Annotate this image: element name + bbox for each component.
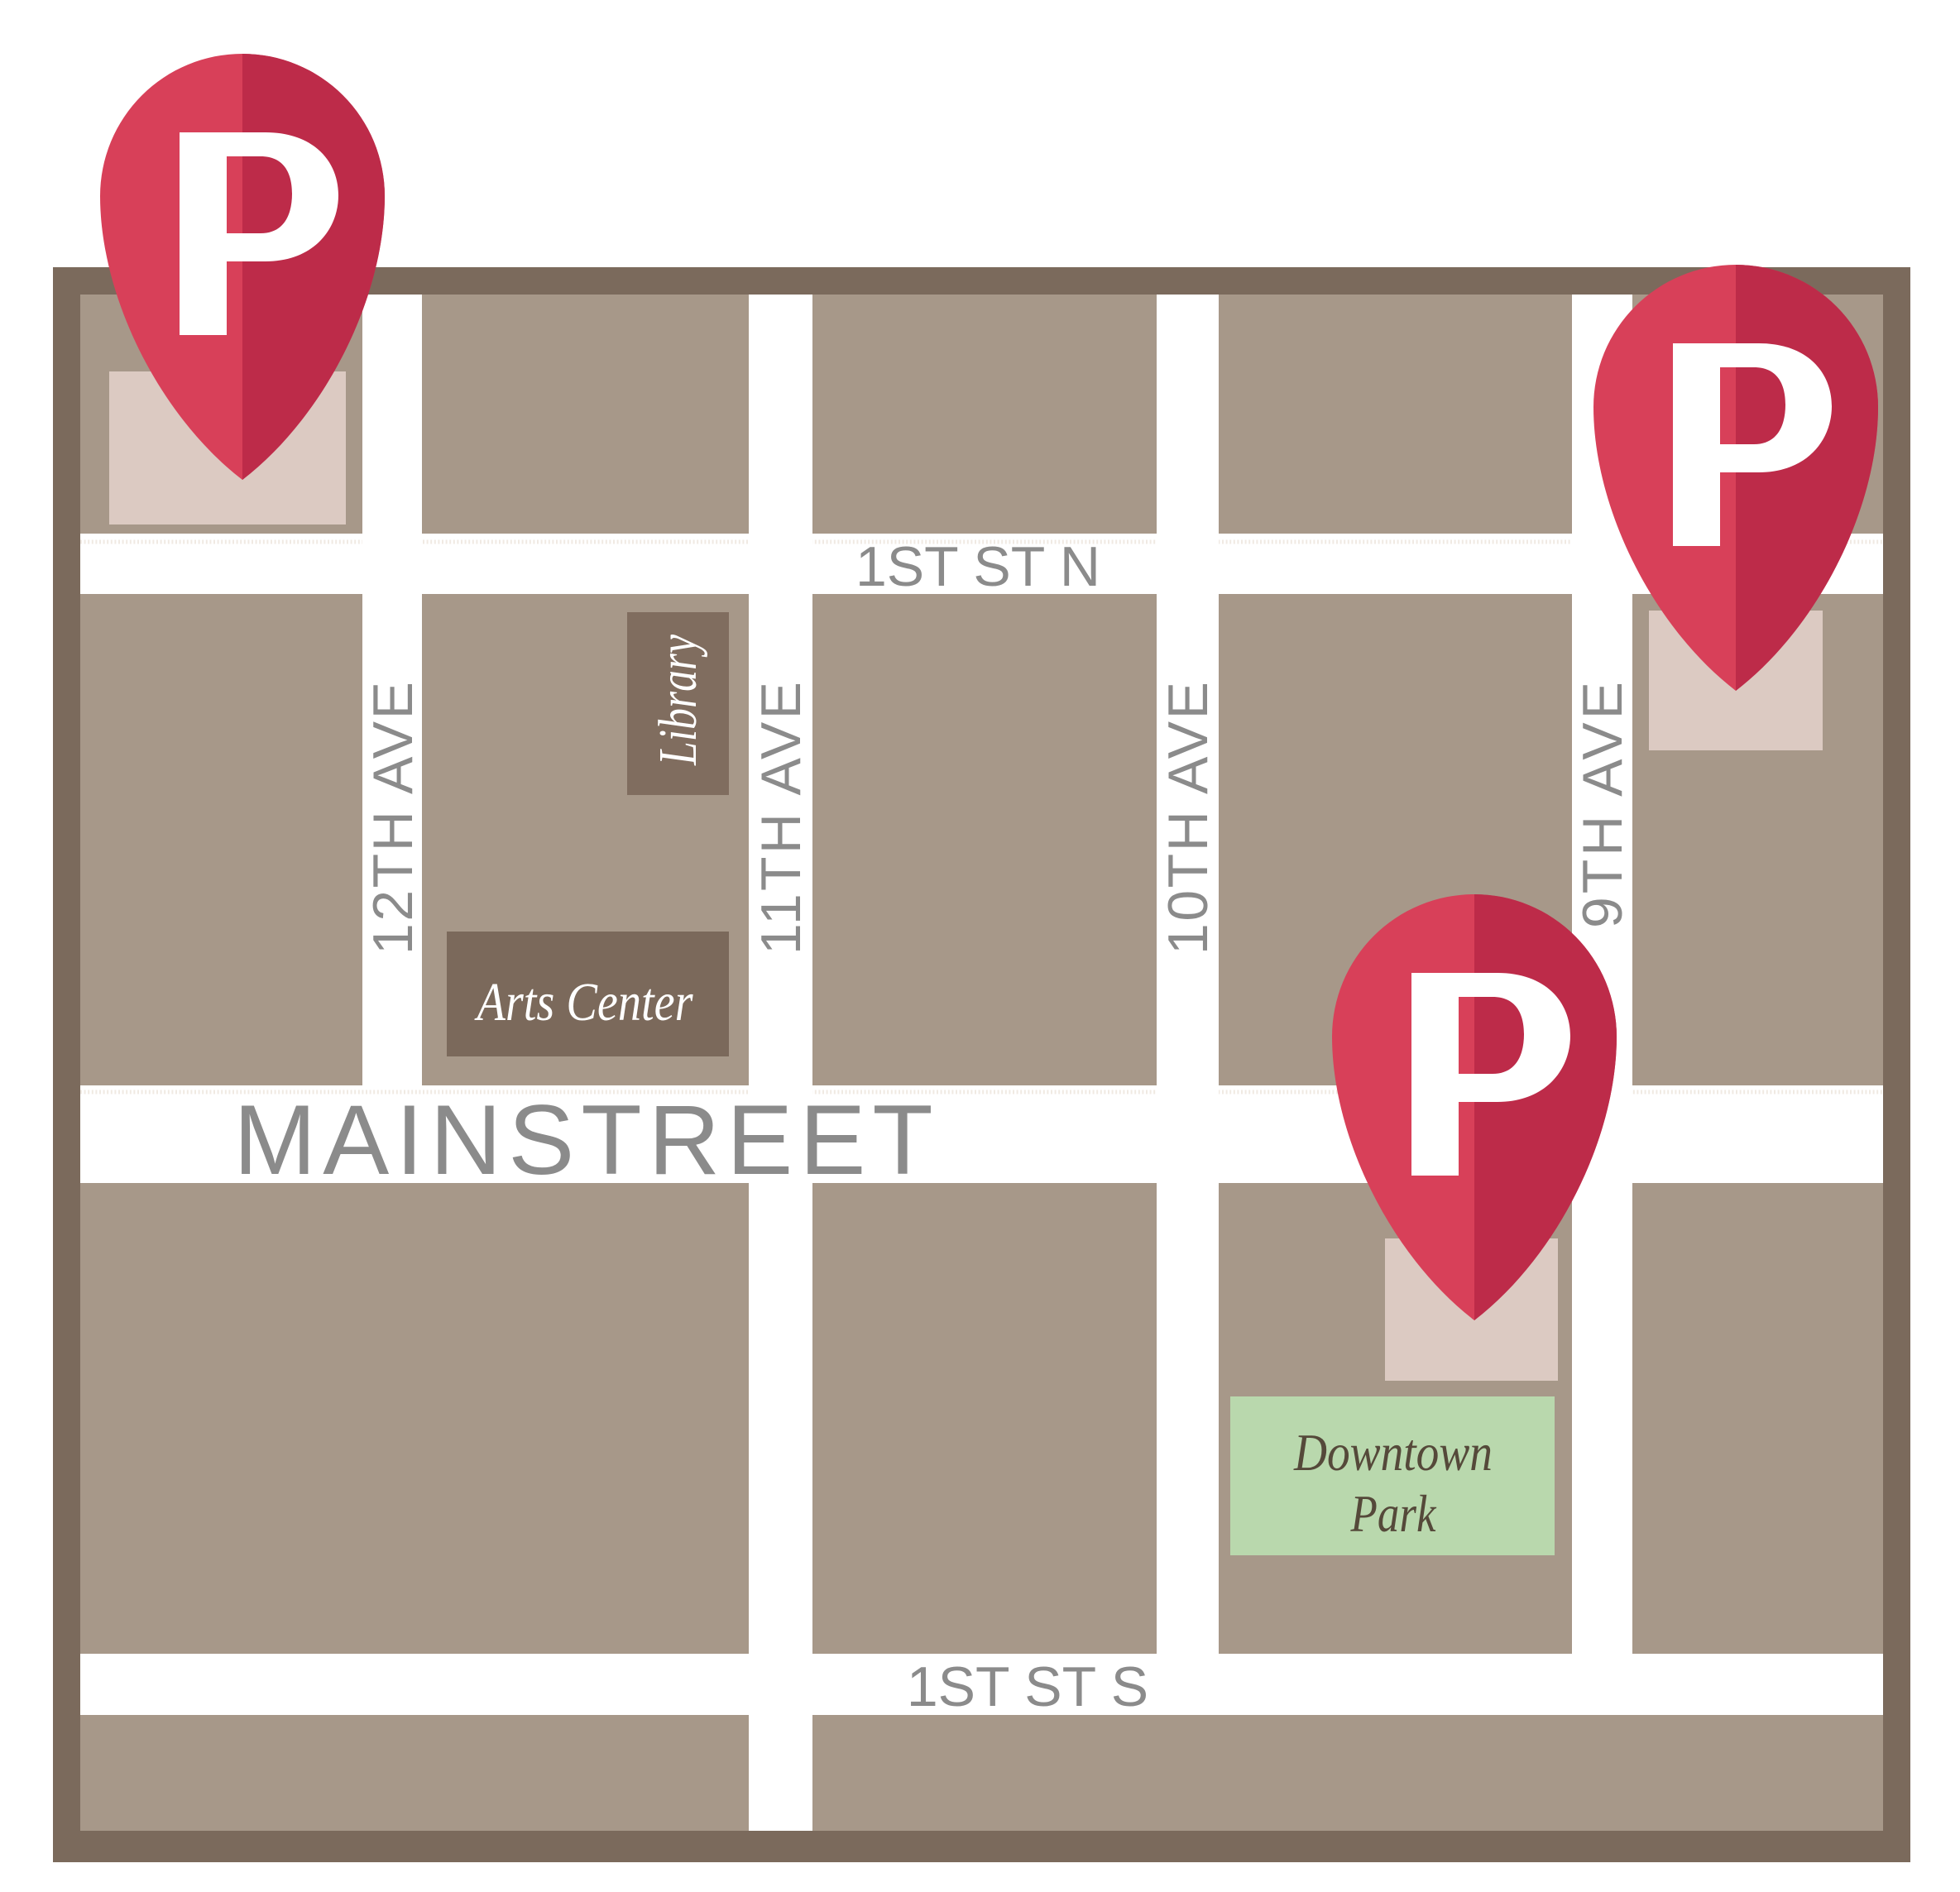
svg-text:Library: Library [648, 634, 708, 765]
svg-text:Park: Park [1350, 1485, 1437, 1543]
svg-text:MAINSTREET: MAINSTREET [233, 1085, 939, 1195]
svg-text:1ST ST S: 1ST ST S [907, 1655, 1148, 1718]
svg-text:9TH AVE: 9TH AVE [1571, 682, 1634, 928]
svg-text:1ST ST N: 1ST ST N [855, 535, 1100, 598]
svg-text:Arts Center: Arts Center [474, 972, 693, 1032]
svg-text:12TH AVE: 12TH AVE [362, 682, 424, 955]
svg-text:11TH AVE: 11TH AVE [750, 682, 812, 955]
svg-text:Downtown: Downtown [1293, 1424, 1493, 1482]
svg-text:10TH AVE: 10TH AVE [1157, 682, 1220, 955]
